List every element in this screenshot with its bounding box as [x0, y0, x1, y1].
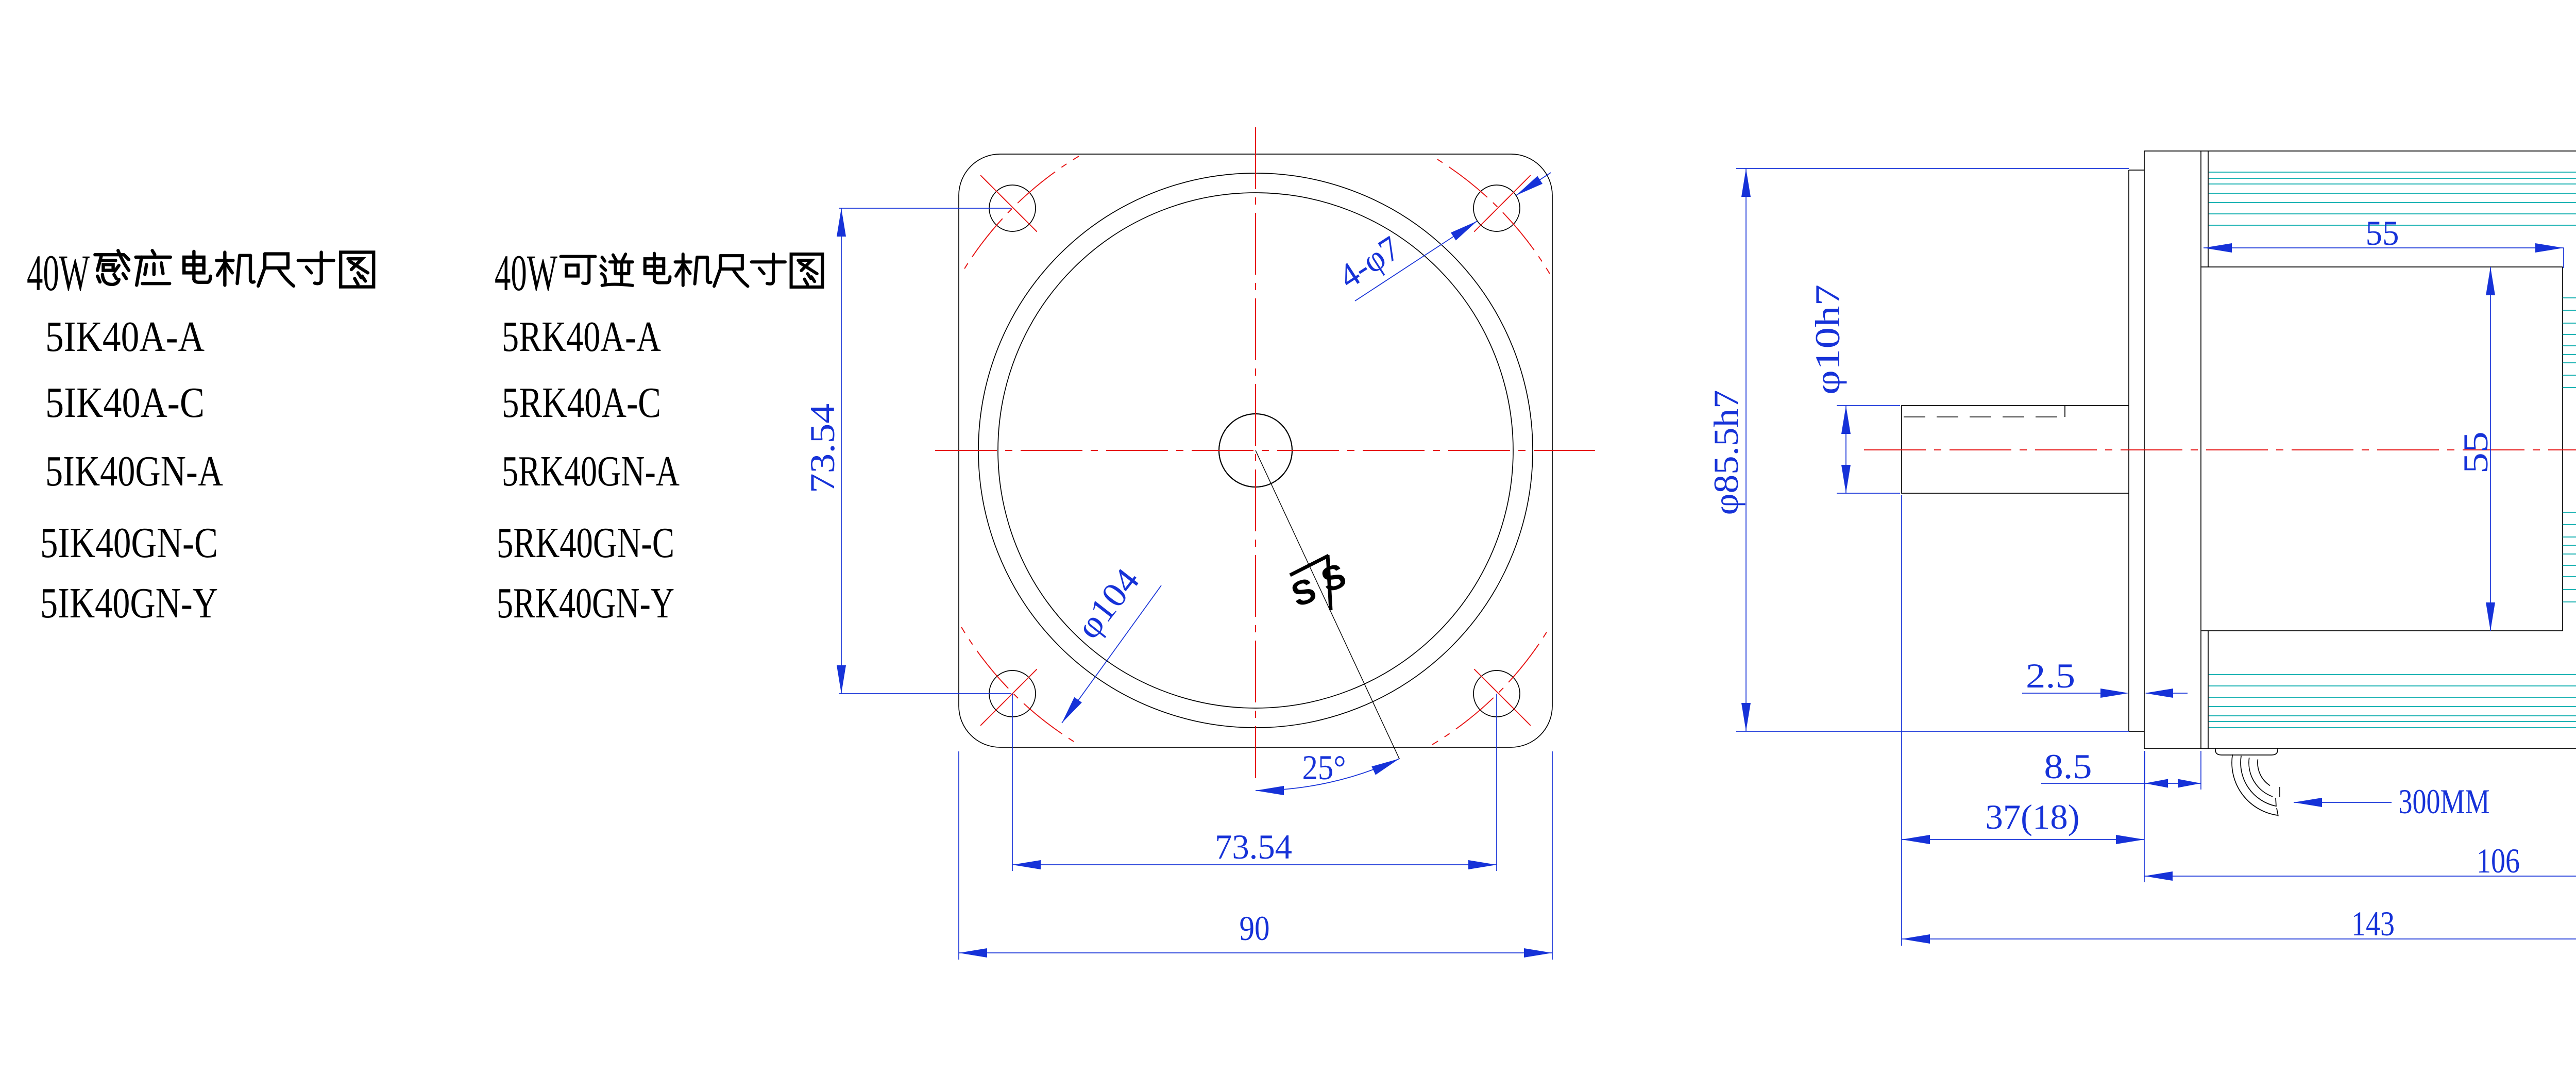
svg-text:5IK40A-A: 5IK40A-A [45, 313, 205, 361]
svg-text:8.5: 8.5 [2044, 747, 2092, 786]
svg-text:90: 90 [1240, 909, 1270, 948]
svg-text:73.54: 73.54 [1215, 827, 1292, 866]
svg-text:37(18): 37(18) [1986, 797, 2080, 836]
svg-text:φ10h7: φ10h7 [1808, 284, 1847, 395]
svg-text:5RK40GN-C: 5RK40GN-C [497, 519, 674, 567]
svg-text:143: 143 [2351, 904, 2395, 943]
svg-text:2.5: 2.5 [2026, 656, 2075, 695]
svg-text:5RK40GN-A: 5RK40GN-A [502, 447, 680, 495]
svg-text:40W: 40W [495, 244, 557, 301]
svg-text:25°: 25° [1302, 748, 1346, 787]
svg-text:55: 55 [2366, 213, 2399, 253]
svg-text:40W: 40W [27, 244, 90, 301]
svg-text:5IK40GN-Y: 5IK40GN-Y [40, 579, 218, 627]
svg-text:5RK40GN-Y: 5RK40GN-Y [497, 579, 674, 627]
svg-text:5RK40A-A: 5RK40A-A [502, 313, 661, 361]
svg-text:5IK40GN-A: 5IK40GN-A [45, 447, 223, 495]
svg-text:55: 55 [2456, 431, 2495, 474]
svg-text:φ85.5h7: φ85.5h7 [1706, 390, 1745, 515]
svg-text:106: 106 [2477, 841, 2520, 880]
svg-text:300MM: 300MM [2399, 782, 2490, 821]
svg-text:5RK40A-C: 5RK40A-C [502, 379, 661, 427]
svg-text:5IK40A-C: 5IK40A-C [45, 379, 205, 427]
svg-text:73.54: 73.54 [803, 404, 842, 493]
svg-text:5IK40GN-C: 5IK40GN-C [40, 519, 218, 567]
